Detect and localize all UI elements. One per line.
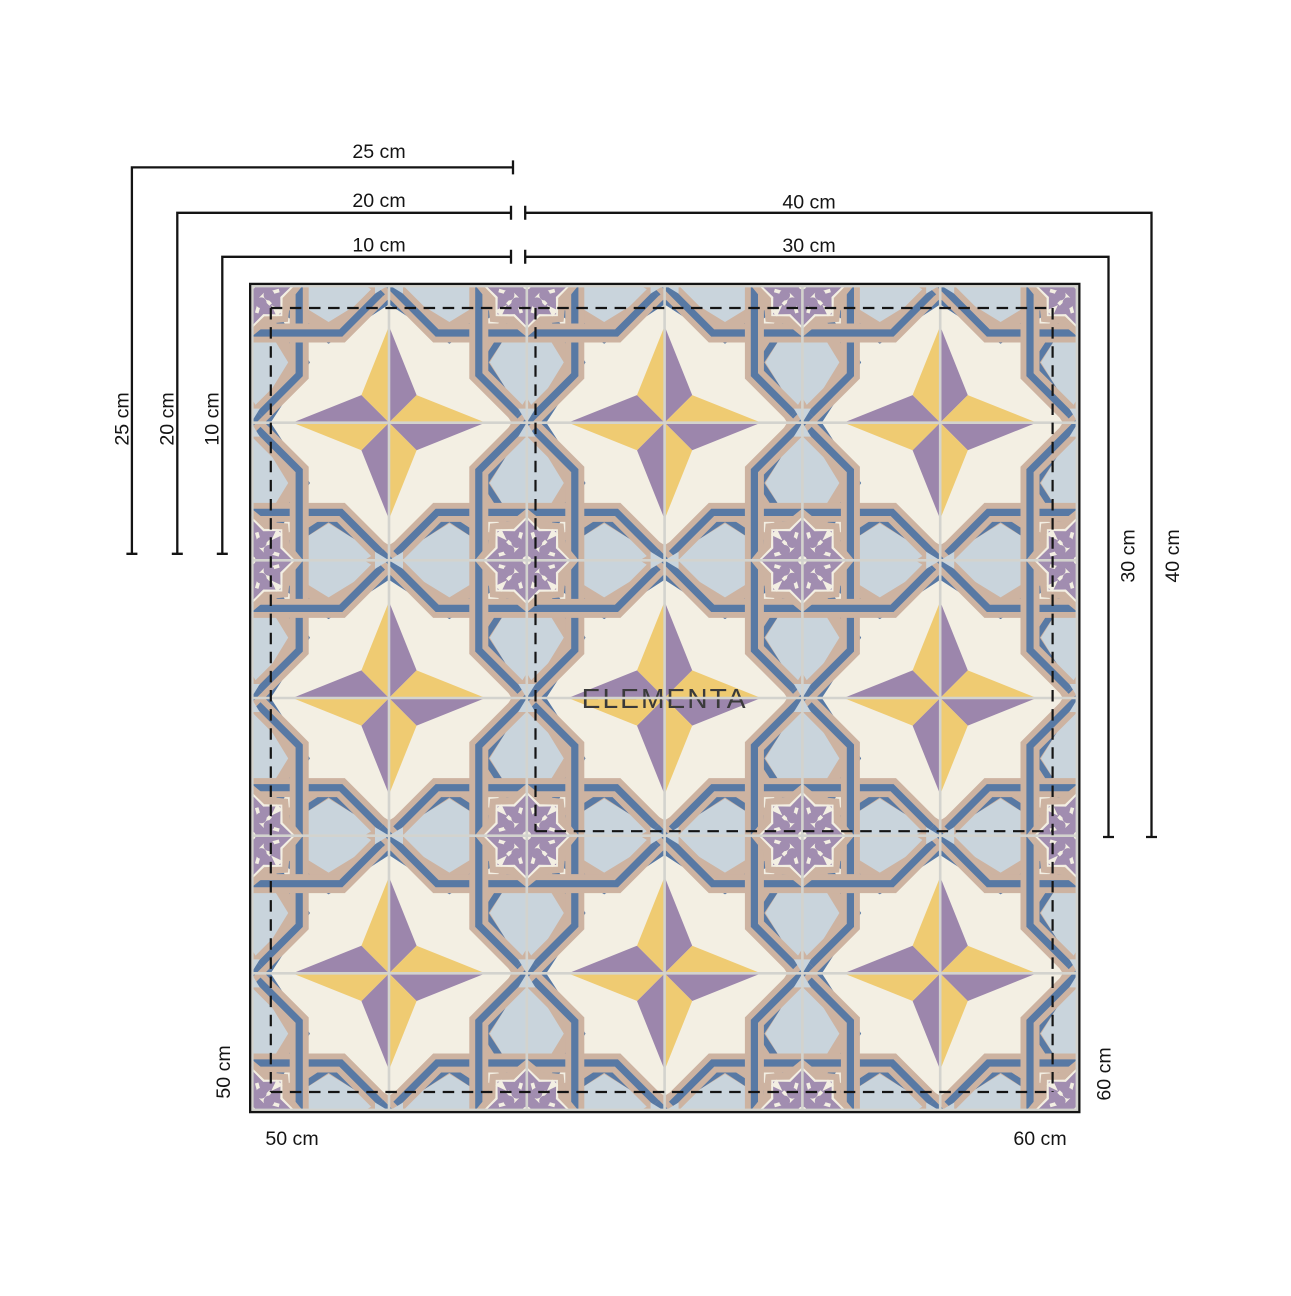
svg-text:10 cm: 10 cm: [352, 235, 405, 257]
svg-text:20 cm: 20 cm: [352, 190, 405, 212]
svg-text:25 cm: 25 cm: [352, 141, 405, 163]
svg-text:30 cm: 30 cm: [782, 235, 835, 257]
svg-text:60 cm: 60 cm: [1094, 1047, 1116, 1100]
svg-text:25 cm: 25 cm: [112, 392, 134, 445]
svg-text:50 cm: 50 cm: [213, 1045, 235, 1098]
svg-text:10 cm: 10 cm: [202, 392, 224, 445]
svg-text:40 cm: 40 cm: [1162, 529, 1184, 582]
svg-text:30 cm: 30 cm: [1118, 529, 1140, 582]
svg-text:60 cm: 60 cm: [1013, 1128, 1066, 1150]
svg-text:50 cm: 50 cm: [265, 1128, 318, 1150]
svg-text:20 cm: 20 cm: [157, 392, 179, 445]
svg-text:40 cm: 40 cm: [782, 192, 835, 214]
